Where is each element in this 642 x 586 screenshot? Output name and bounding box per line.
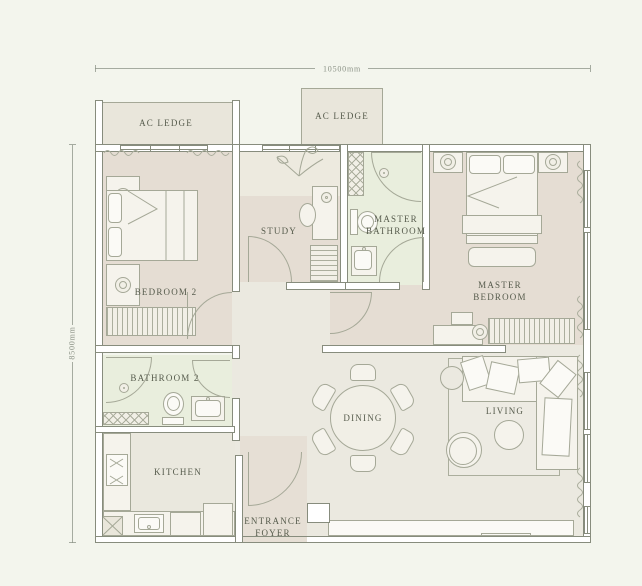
sofa-cushion <box>485 361 520 395</box>
wall-study-bath <box>340 144 348 290</box>
wall-bath-bottom <box>345 282 400 290</box>
shelf <box>310 245 338 282</box>
bench <box>468 247 536 267</box>
pillow <box>503 155 535 174</box>
wall-entry-bottom <box>322 345 506 353</box>
dishwasher <box>170 512 201 536</box>
pillow <box>469 155 501 174</box>
wall-bathroom2-right-lower <box>232 398 240 441</box>
wall-bathroom2-right-upper <box>232 345 240 359</box>
sofa-cushion <box>542 397 573 456</box>
lamp-icon <box>440 154 456 170</box>
window-glass <box>584 232 591 330</box>
service-shaft <box>102 516 123 536</box>
stool-icon <box>472 324 488 340</box>
wardrobe <box>106 307 196 336</box>
dim-line-top-right <box>368 68 590 69</box>
shower-bench <box>103 412 149 425</box>
dim-line-top-left <box>95 68 315 69</box>
entrance-foyer-label: ENTRANCE FOYER <box>244 515 302 539</box>
dim-tick <box>95 65 96 72</box>
dresser-box <box>451 312 473 325</box>
bedroom2-label: BEDROOM 2 <box>135 286 198 298</box>
window <box>262 145 340 152</box>
floor-lamp-icon <box>440 366 464 390</box>
dim-width-label: 10500mm <box>323 65 361 74</box>
dim-tick <box>590 65 591 72</box>
bed-throw <box>462 215 542 234</box>
master-bathroom-label: MASTER BATHROOM <box>366 213 426 237</box>
window-glass <box>584 372 591 430</box>
window-glass <box>584 170 591 228</box>
window <box>120 145 208 152</box>
floor-plan: AC LEDGE AC LEDGE BEDROOM 2 STUDY MASTER… <box>0 0 642 586</box>
desk-lamp-icon <box>321 192 332 203</box>
ac-ledge-mid-label: AC LEDGE <box>315 110 369 122</box>
wall-left <box>95 100 103 543</box>
vanity-sink <box>195 400 221 417</box>
side-table <box>494 420 524 450</box>
wall-study-bottom <box>286 282 348 290</box>
dim-line-left-top <box>72 145 73 325</box>
bed-throw <box>466 235 538 244</box>
pillow <box>108 227 122 257</box>
lamp-icon <box>115 277 131 293</box>
tv-console <box>328 520 574 536</box>
master-bedroom-label: MASTER BEDROOM <box>473 279 526 303</box>
living-label: LIVING <box>486 405 524 417</box>
coffee-table-inner <box>449 437 477 465</box>
dining-chair <box>350 455 376 472</box>
shower-glass <box>348 152 364 196</box>
vanity-sink <box>354 250 372 270</box>
wall-bedroom2-bottom <box>95 345 240 353</box>
dim-tick <box>69 144 76 145</box>
wall-bottom <box>95 536 591 543</box>
fridge <box>203 503 233 536</box>
kitchen-sink-basin <box>138 517 160 530</box>
window-glass <box>584 434 591 483</box>
wardrobe <box>488 318 575 344</box>
toilet-tank <box>162 417 184 425</box>
dining-label: DINING <box>343 412 382 424</box>
study-label: STUDY <box>261 225 297 237</box>
dim-line-left-bottom <box>72 362 73 543</box>
window-glass <box>584 506 591 534</box>
toilet-bowl-inner <box>167 396 180 411</box>
desk-chair <box>299 203 316 227</box>
bathroom2-label: BATHROOM 2 <box>130 372 199 384</box>
pillow <box>108 193 122 223</box>
dining-chair <box>350 364 376 381</box>
bedroom2-door-leaf <box>187 292 188 339</box>
dim-height-label: 8500mm <box>68 326 77 359</box>
ac-ledge-left-label: AC LEDGE <box>139 117 193 129</box>
wall-foyer-stub <box>307 503 330 523</box>
lamp-icon <box>545 154 561 170</box>
wall-bedroom2-study <box>232 144 240 292</box>
dim-tick <box>69 542 76 543</box>
cooktop <box>106 454 128 486</box>
wall-bathroom2-bottom <box>95 426 235 433</box>
kitchen-label: KITCHEN <box>154 466 202 478</box>
wall-kitchen-foyer <box>235 455 243 543</box>
